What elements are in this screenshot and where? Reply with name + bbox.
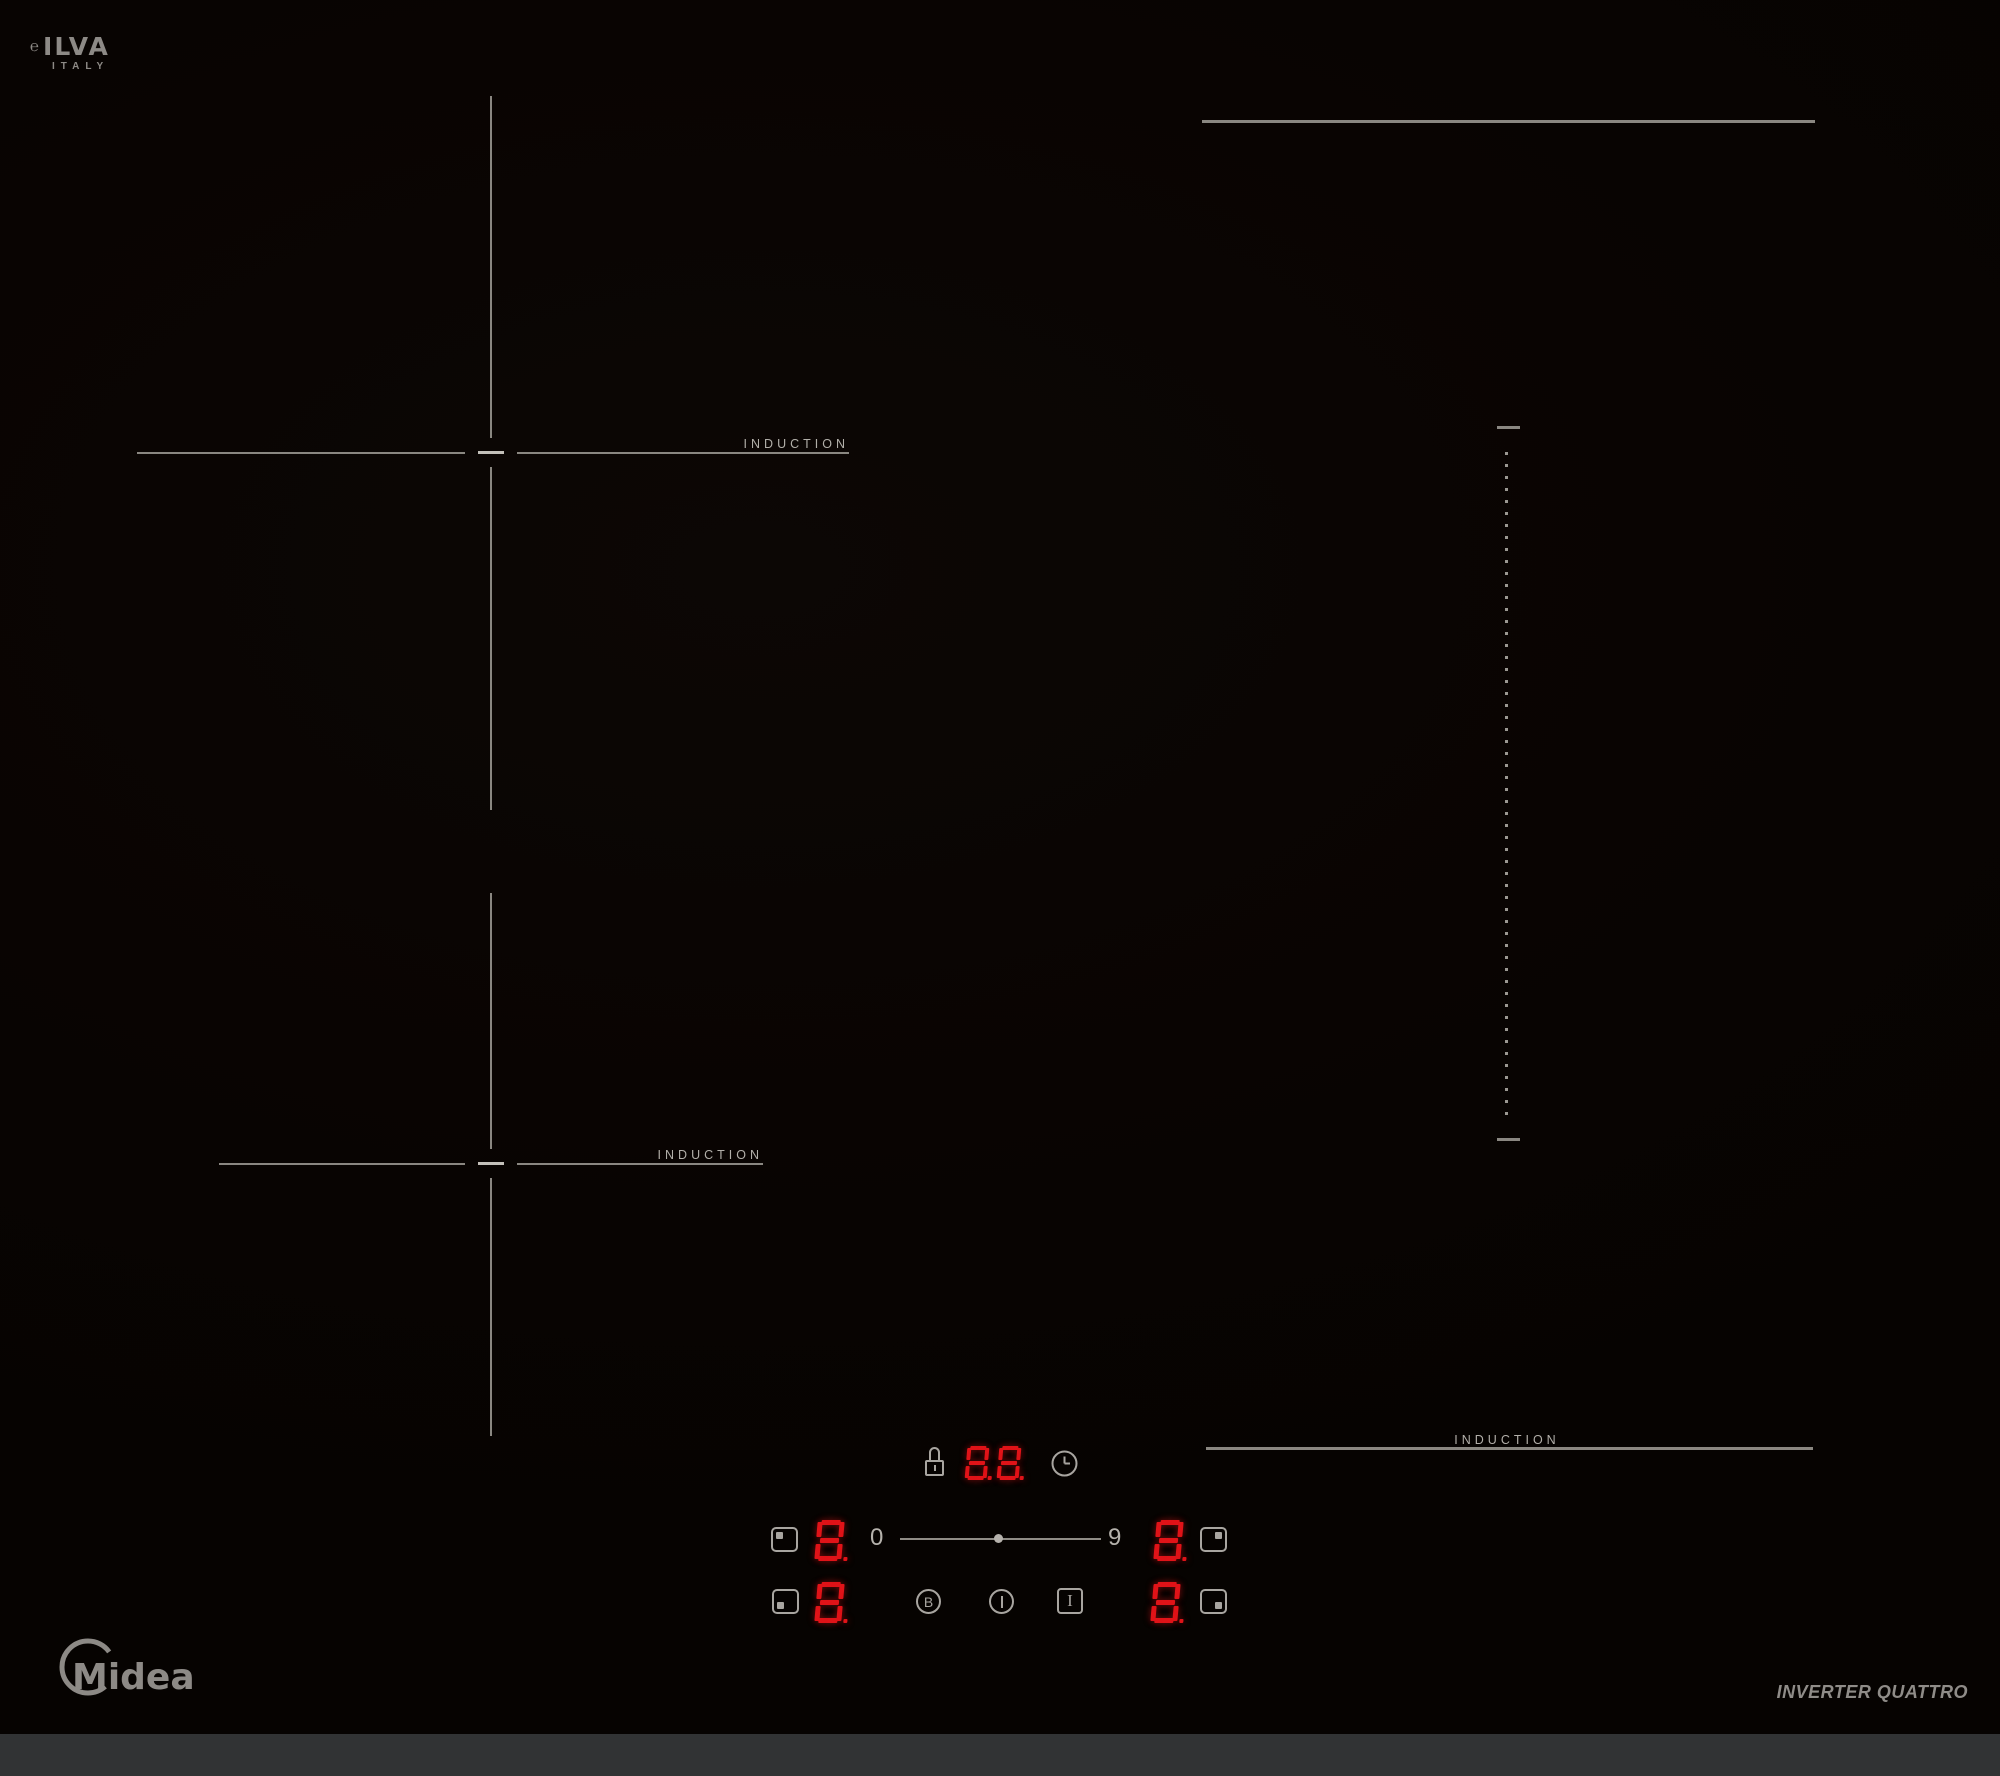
front-left-power-display xyxy=(816,1582,853,1623)
divider-bottom-dash xyxy=(1497,1138,1520,1141)
seven-segment-digit xyxy=(814,1520,845,1561)
cross-vertical-bottom xyxy=(490,467,492,810)
estimated-sign-icon: ℮ xyxy=(30,38,39,55)
rear-right-power-display xyxy=(1155,1520,1192,1561)
power-key[interactable] xyxy=(989,1589,1014,1614)
zone-rear-left-label: INDUCTION xyxy=(549,437,849,451)
booster-label: B xyxy=(924,1594,933,1610)
cross-vertical-top xyxy=(490,893,492,1149)
cross-vertical-bottom xyxy=(490,1178,492,1436)
zone-position-dot-icon xyxy=(776,1532,783,1539)
seven-segment-digit xyxy=(1150,1582,1181,1623)
zone-select-rear-right-key[interactable] xyxy=(1200,1527,1227,1552)
zone-front-left-label: INDUCTION xyxy=(463,1148,763,1162)
ilva-logo: ℮ ILVA ITALY xyxy=(30,34,110,72)
zone-position-dot-icon xyxy=(777,1602,784,1609)
seven-segment-digit xyxy=(1153,1520,1184,1561)
zone-position-dot-icon xyxy=(1215,1532,1222,1539)
booster-key[interactable]: B xyxy=(916,1589,941,1614)
timer-key[interactable] xyxy=(1051,1450,1078,1477)
midea-wordmark: Midea xyxy=(72,1657,195,1698)
cross-horizontal-left xyxy=(137,452,465,454)
divider-top-dash xyxy=(1497,426,1520,429)
seven-segment-digit xyxy=(965,1446,990,1480)
cross-vertical-top xyxy=(490,96,492,438)
power-slider-knob[interactable] xyxy=(994,1534,1003,1543)
front-right-power-display xyxy=(1152,1582,1189,1623)
padlock-body-icon xyxy=(925,1460,944,1476)
pause-key[interactable]: I xyxy=(1057,1588,1083,1614)
cross-center-dash xyxy=(478,451,504,455)
power-bar-icon xyxy=(1001,1596,1003,1608)
zone-position-dot-icon xyxy=(1215,1602,1222,1609)
cross-horizontal-right xyxy=(517,1163,763,1165)
zone-select-front-right-key[interactable] xyxy=(1200,1589,1227,1614)
induction-hob-surface: ℮ ILVA ITALY INDUCTION INDUCTION INDUCTI… xyxy=(0,0,2000,1776)
lock-key[interactable] xyxy=(925,1447,944,1476)
timer-display xyxy=(966,1446,1030,1480)
padlock-shackle-icon xyxy=(929,1447,940,1460)
zone-front-right-marker-line xyxy=(1206,1447,1813,1450)
zone-rear-right-marker-line xyxy=(1202,120,1815,123)
pause-label: I xyxy=(1067,1591,1073,1611)
cross-horizontal-right xyxy=(517,452,849,454)
seven-segment-digit xyxy=(814,1582,845,1623)
zone-select-rear-left-key[interactable] xyxy=(771,1527,798,1552)
zone-front-right-label: INDUCTION xyxy=(1307,1433,1707,1447)
seven-segment-digit xyxy=(997,1446,1022,1480)
ilva-country-label: ITALY xyxy=(30,61,110,72)
midea-logo: Midea xyxy=(52,1636,212,1702)
zone-select-front-left-key[interactable] xyxy=(772,1589,799,1614)
hob-front-edge xyxy=(0,1734,2000,1776)
ilva-wordmark: ILVA xyxy=(43,34,110,59)
power-scale-min-label: 0 xyxy=(870,1524,883,1552)
rear-left-power-display xyxy=(816,1520,853,1561)
power-scale-max-label: 9 xyxy=(1108,1524,1121,1552)
cross-horizontal-left xyxy=(219,1163,465,1165)
tagline: INVERTER QUATTRO xyxy=(1777,1682,1968,1703)
cross-center-dash xyxy=(478,1162,504,1166)
divider-dotted-line xyxy=(1505,452,1508,1116)
